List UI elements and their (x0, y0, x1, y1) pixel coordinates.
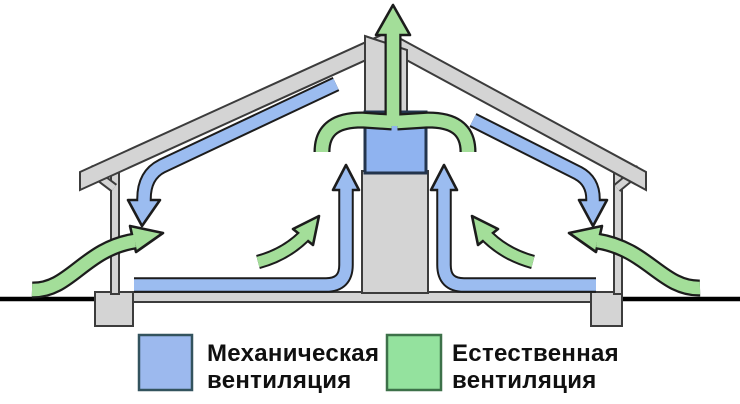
legend-label-mechanical-line1: Механическая (207, 340, 379, 367)
foundation-pier-left (95, 292, 133, 326)
legend-swatch-natural (387, 335, 441, 390)
natural-intake-left-arrowhead (130, 226, 163, 252)
diagram-canvas: Механическая вентиляция Естественная вен… (0, 0, 740, 404)
legend-swatch-mechanical (139, 335, 192, 390)
natural-intake-right (597, 241, 700, 288)
ventilation-diagram: Механическая вентиляция Естественная вен… (0, 0, 740, 404)
roof-slope-left (80, 32, 388, 190)
floor-slab (95, 292, 622, 302)
legend-label-natural-line1: Естественная (452, 340, 619, 367)
foundation-pier-right (591, 292, 622, 326)
exhaust-shaft-lower (362, 171, 428, 293)
natural-intake-right-arrowhead (569, 226, 602, 252)
legend: Механическая вентиляция Естественная вен… (139, 335, 619, 394)
legend-label-mechanical-line2: вентиляция (207, 367, 352, 394)
legend-label-natural-line2: вентиляция (452, 367, 597, 394)
